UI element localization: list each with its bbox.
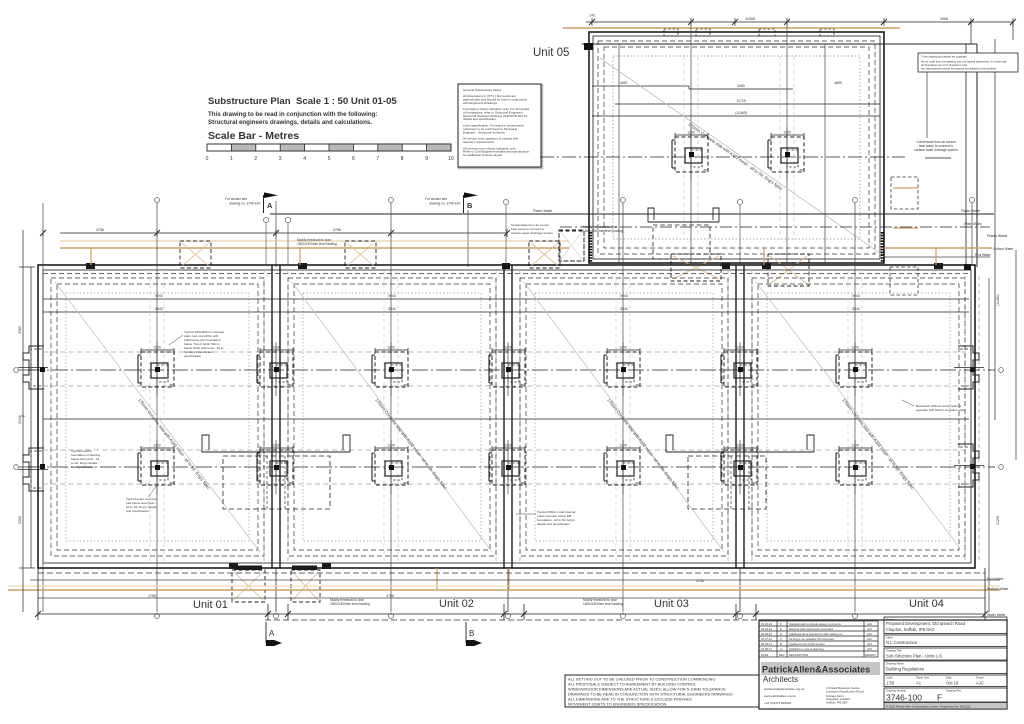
svg-text:Engineer - Structural Solution: Engineer - Structural Solutions bbox=[463, 130, 505, 134]
svg-text:5840: 5840 bbox=[388, 307, 396, 311]
svg-text:© this drawing and design are: © this drawing and design are copyright bbox=[921, 55, 967, 59]
svg-text:PatrickAllen&Associates: PatrickAllen&Associates bbox=[762, 665, 870, 675]
svg-text:AJC: AJC bbox=[867, 647, 872, 651]
svg-text:AJC: AJC bbox=[976, 681, 984, 686]
svg-text:5840: 5840 bbox=[620, 307, 628, 311]
svg-text:A: A bbox=[267, 201, 273, 210]
svg-text:DRAWN: DRAWN bbox=[865, 653, 875, 657]
svg-text:1500x1500mm level landing: 1500x1500mm level landing bbox=[297, 242, 337, 246]
svg-text:For section see: For section see bbox=[425, 197, 447, 201]
svg-text:D: D bbox=[780, 632, 782, 636]
svg-text:DATE: DATE bbox=[761, 653, 768, 657]
svg-text:4687: 4687 bbox=[620, 81, 628, 85]
svg-text:30.07.22: 30.07.22 bbox=[761, 637, 772, 641]
svg-text:Unit 04: Unit 04 bbox=[909, 598, 944, 610]
svg-text:Surface Water: Surface Water bbox=[987, 587, 1009, 591]
svg-text:5840: 5840 bbox=[155, 307, 163, 311]
svg-text:External wall construction ame: External wall construction amended bbox=[789, 627, 834, 631]
svg-text:Additional dims inserted for s: Additional dims inserted for slab settin… bbox=[789, 632, 843, 636]
svg-text:C: C bbox=[780, 637, 782, 641]
svg-text:Drawing Name: Drawing Name bbox=[886, 662, 904, 666]
svg-text:Client: Client bbox=[886, 636, 893, 640]
svg-text:5944: 5944 bbox=[620, 294, 628, 298]
svg-text:AJC: AJC bbox=[867, 622, 872, 626]
svg-text:Updated slab to include design: Updated slab to include design comments bbox=[789, 622, 842, 626]
svg-text:01.06.21: 01.06.21 bbox=[761, 647, 772, 651]
svg-text:and specification: and specification bbox=[126, 509, 149, 513]
svg-text:Architects: Architects bbox=[763, 675, 798, 684]
svg-text:A: A bbox=[269, 629, 275, 638]
svg-text:specification: specification bbox=[184, 354, 201, 358]
svg-text:5: 5 bbox=[328, 156, 331, 162]
svg-text:Lonebarn Road/Lakes Road: Lonebarn Road/Lakes Road bbox=[826, 689, 864, 693]
svg-text:4756: 4756 bbox=[148, 594, 156, 598]
svg-text:5840: 5840 bbox=[852, 307, 860, 311]
svg-text:Updated to current planning: Updated to current planning bbox=[789, 647, 824, 651]
svg-text:surface water drainage system: surface water drainage system bbox=[914, 148, 958, 152]
svg-text:This drawing to be read in con: This drawing to be read in conjunction w… bbox=[208, 111, 377, 118]
svg-text:2: 2 bbox=[254, 156, 257, 162]
svg-text:11725: 11725 bbox=[736, 99, 745, 103]
svg-text:for additional services layout: for additional services layout. bbox=[463, 153, 503, 157]
svg-text:Paper Size: Paper Size bbox=[916, 676, 930, 680]
svg-text:N L Construction: N L Construction bbox=[886, 640, 918, 645]
svg-text:Proposed Development, Old Ipsw: Proposed Development, Old Ipswich Road bbox=[886, 621, 966, 626]
svg-text:Sub-Structure Plan - Units 1-5: Sub-Structure Plan - Units 1-5 bbox=[886, 654, 943, 659]
svg-text:Structural engineers drawings,: Structural engineers drawings, details a… bbox=[208, 119, 372, 126]
svg-text:09.06.21: 09.06.21 bbox=[761, 642, 772, 646]
svg-text:drawing no. 3746-104: drawing no. 3746-104 bbox=[229, 202, 260, 206]
svg-text:Scale: Scale bbox=[886, 676, 893, 680]
svg-text:Plastic Waste: Plastic Waste bbox=[961, 209, 980, 213]
svg-text:Updated to the 0.002 version: Updated to the 0.002 version bbox=[789, 642, 825, 646]
svg-text:AJC: AJC bbox=[867, 632, 872, 636]
svg-text:Water Mains: Water Mains bbox=[964, 222, 982, 226]
svg-text:5944: 5944 bbox=[852, 294, 860, 298]
svg-text:3966: 3966 bbox=[940, 17, 948, 21]
svg-text:1:50: 1:50 bbox=[886, 681, 895, 686]
svg-text:5030: 5030 bbox=[18, 416, 22, 424]
svg-text:Drawing Rev: Drawing Rev bbox=[946, 689, 962, 693]
svg-text:+44 (0)1473 833666: +44 (0)1473 833666 bbox=[764, 701, 791, 705]
svg-text:Surface Water: Surface Water bbox=[993, 247, 1014, 251]
svg-text:Foul Water: Foul Water bbox=[987, 577, 1004, 581]
svg-text:REV: REV bbox=[779, 653, 785, 657]
svg-text:Plastic Waste: Plastic Waste bbox=[533, 209, 552, 213]
svg-text:4756: 4756 bbox=[333, 228, 341, 232]
svg-text:3746-100: 3746-100 bbox=[886, 693, 922, 703]
svg-text:F: F bbox=[780, 622, 782, 626]
svg-text:separate with 50mm insulation: separate with 50mm insulation slab bbox=[916, 408, 965, 412]
svg-text:Drawn: Drawn bbox=[976, 676, 984, 680]
svg-text:5944: 5944 bbox=[388, 294, 396, 298]
svg-text:AJC: AJC bbox=[867, 642, 872, 646]
svg-text:statutory requirements.: statutory requirements. bbox=[463, 140, 495, 144]
svg-text:Water Meter: Water Meter bbox=[987, 613, 1006, 617]
svg-text:Building Regulations: Building Regulations bbox=[886, 667, 924, 672]
svg-text:surface water drainage system: surface water drainage system bbox=[511, 231, 554, 235]
svg-text:11808: 11808 bbox=[745, 17, 755, 21]
svg-text:A: A bbox=[780, 647, 782, 651]
svg-text:Unit 03: Unit 03 bbox=[654, 598, 689, 610]
svg-text:09.04.22: 09.04.22 bbox=[761, 627, 772, 631]
svg-text:0: 0 bbox=[206, 156, 209, 162]
svg-text:drawing no. 3746-104: drawing no. 3746-104 bbox=[429, 202, 460, 206]
svg-text:details and specification.: details and specification. bbox=[463, 117, 497, 121]
svg-text:MOVEMENT JOINTS TO ENGINEERS S: MOVEMENT JOINTS TO ENGINEERS SPECIFICATI… bbox=[568, 702, 666, 707]
svg-text:21251: 21251 bbox=[996, 515, 1000, 525]
svg-text:Oct 18: Oct 18 bbox=[946, 681, 959, 686]
svg-text:3: 3 bbox=[279, 156, 282, 162]
svg-text:Claydon, Suffolk, IP6 0AG: Claydon, Suffolk, IP6 0AG bbox=[886, 627, 935, 632]
svg-text:5365: 5365 bbox=[18, 516, 22, 524]
svg-text:F: F bbox=[937, 693, 942, 703]
svg-text:www.patrickallen.org.uk: www.patrickallen.org.uk bbox=[764, 694, 796, 698]
svg-text:Scale Bar - Metres: Scale Bar - Metres bbox=[208, 130, 299, 142]
svg-text:A1: A1 bbox=[916, 681, 922, 686]
svg-text:03.03.23: 03.03.23 bbox=[761, 622, 772, 626]
svg-text:140: 140 bbox=[589, 14, 595, 18]
svg-text:AJC: AJC bbox=[867, 627, 872, 631]
svg-text:do not scale from this drawing: do not scale from this drawing, use only… bbox=[921, 60, 1007, 64]
svg-text:Unit 02: Unit 02 bbox=[439, 598, 474, 610]
svg-text:4: 4 bbox=[303, 156, 306, 162]
svg-text:with Engineers Drawings.: with Engineers Drawings. bbox=[463, 101, 498, 105]
svg-text:Plastic Waste: Plastic Waste bbox=[987, 234, 1008, 238]
svg-text:details and specification: details and specification bbox=[537, 522, 570, 526]
svg-text:06.08.22: 06.08.22 bbox=[761, 632, 772, 636]
svg-text:General Substructure Notes: General Substructure Notes bbox=[463, 88, 502, 92]
svg-text:E: E bbox=[780, 627, 782, 631]
svg-text:Substructure Plan Scale 1 : 5: Substructure Plan Scale 1 : 50 Unit 01-0… bbox=[208, 96, 397, 107]
svg-text:and specification: and specification bbox=[71, 465, 94, 469]
svg-text:AJC: AJC bbox=[867, 637, 872, 641]
svg-text:Str Eng's rev updated. Pkt ame: Str Eng's rev updated. Pkt amended bbox=[789, 637, 834, 641]
svg-text:Drawing Title: Drawing Title bbox=[886, 649, 902, 653]
svg-text:Foul Water: Foul Water bbox=[975, 253, 991, 257]
svg-text:Unit 01: Unit 01 bbox=[193, 599, 228, 611]
svg-text:B: B bbox=[780, 642, 782, 646]
svg-text:5944: 5944 bbox=[155, 294, 163, 298]
svg-text:all dimensions are to be check: all dimensions are to be checked on site… bbox=[921, 63, 968, 67]
svg-text:7: 7 bbox=[376, 156, 379, 162]
svg-text:Suffolk, IP5 2BY: Suffolk, IP5 2BY bbox=[826, 701, 848, 705]
svg-text:Date: Date bbox=[946, 676, 952, 680]
svg-text:For section see: For section see bbox=[225, 197, 247, 201]
svg-text:4756: 4756 bbox=[96, 228, 104, 232]
svg-text:B: B bbox=[469, 629, 474, 638]
svg-text:1: 1 bbox=[230, 156, 233, 162]
svg-text:architects@patrickallen.org.uk: architects@patrickallen.org.uk bbox=[764, 687, 805, 691]
svg-text:4756: 4756 bbox=[696, 579, 704, 583]
svg-text:1500x1500mm level landing: 1500x1500mm level landing bbox=[330, 602, 370, 606]
svg-text:(11460): (11460) bbox=[996, 294, 1000, 305]
svg-text:8: 8 bbox=[401, 156, 404, 162]
svg-text:6: 6 bbox=[352, 156, 355, 162]
svg-text:10: 10 bbox=[448, 156, 454, 162]
svg-text:Unit 05: Unit 05 bbox=[533, 47, 569, 59]
svg-text:4756: 4756 bbox=[386, 594, 394, 598]
svg-text:DESCRIPTION: DESCRIPTION bbox=[789, 653, 808, 657]
svg-text:any discrepancies should be re: any discrepancies should be reported imm… bbox=[921, 66, 997, 70]
svg-text:B: B bbox=[467, 201, 473, 210]
svg-text:5365: 5365 bbox=[18, 326, 22, 334]
svg-text:1500x1500mm level landing: 1500x1500mm level landing bbox=[583, 229, 623, 233]
svg-text:1500x1500mm level landing: 1500x1500mm level landing bbox=[583, 602, 623, 606]
svg-text:9: 9 bbox=[425, 156, 428, 162]
svg-text:© 2018 Patrick Allen & Associa: © 2018 Patrick Allen & Associates Limite… bbox=[886, 705, 971, 709]
svg-text:3460: 3460 bbox=[737, 84, 745, 88]
svg-text:(11460): (11460) bbox=[735, 111, 746, 115]
svg-text:4685: 4685 bbox=[834, 81, 842, 85]
